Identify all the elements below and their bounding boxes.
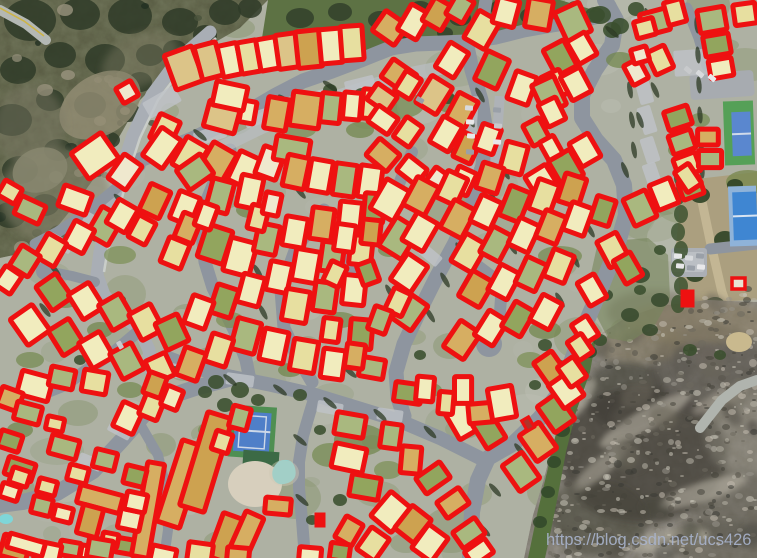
svg-text:https://blog.csdn.net/ucs426: https://blog.csdn.net/ucs426 (546, 531, 751, 549)
